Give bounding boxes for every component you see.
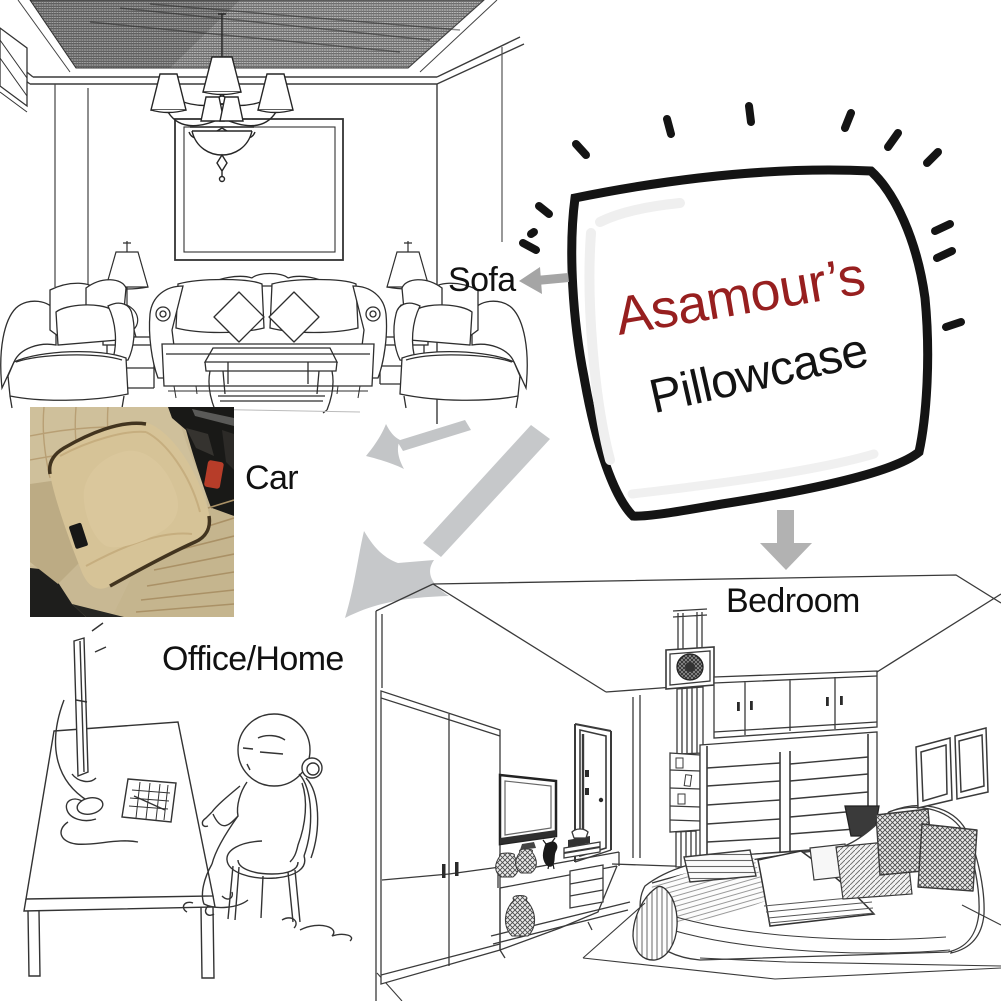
svg-text:Bedroom: Bedroom bbox=[726, 582, 860, 620]
svg-text:Sofa: Sofa bbox=[448, 261, 516, 299]
svg-text:Car: Car bbox=[245, 459, 298, 497]
svg-text:Office/Home: Office/Home bbox=[162, 640, 344, 678]
